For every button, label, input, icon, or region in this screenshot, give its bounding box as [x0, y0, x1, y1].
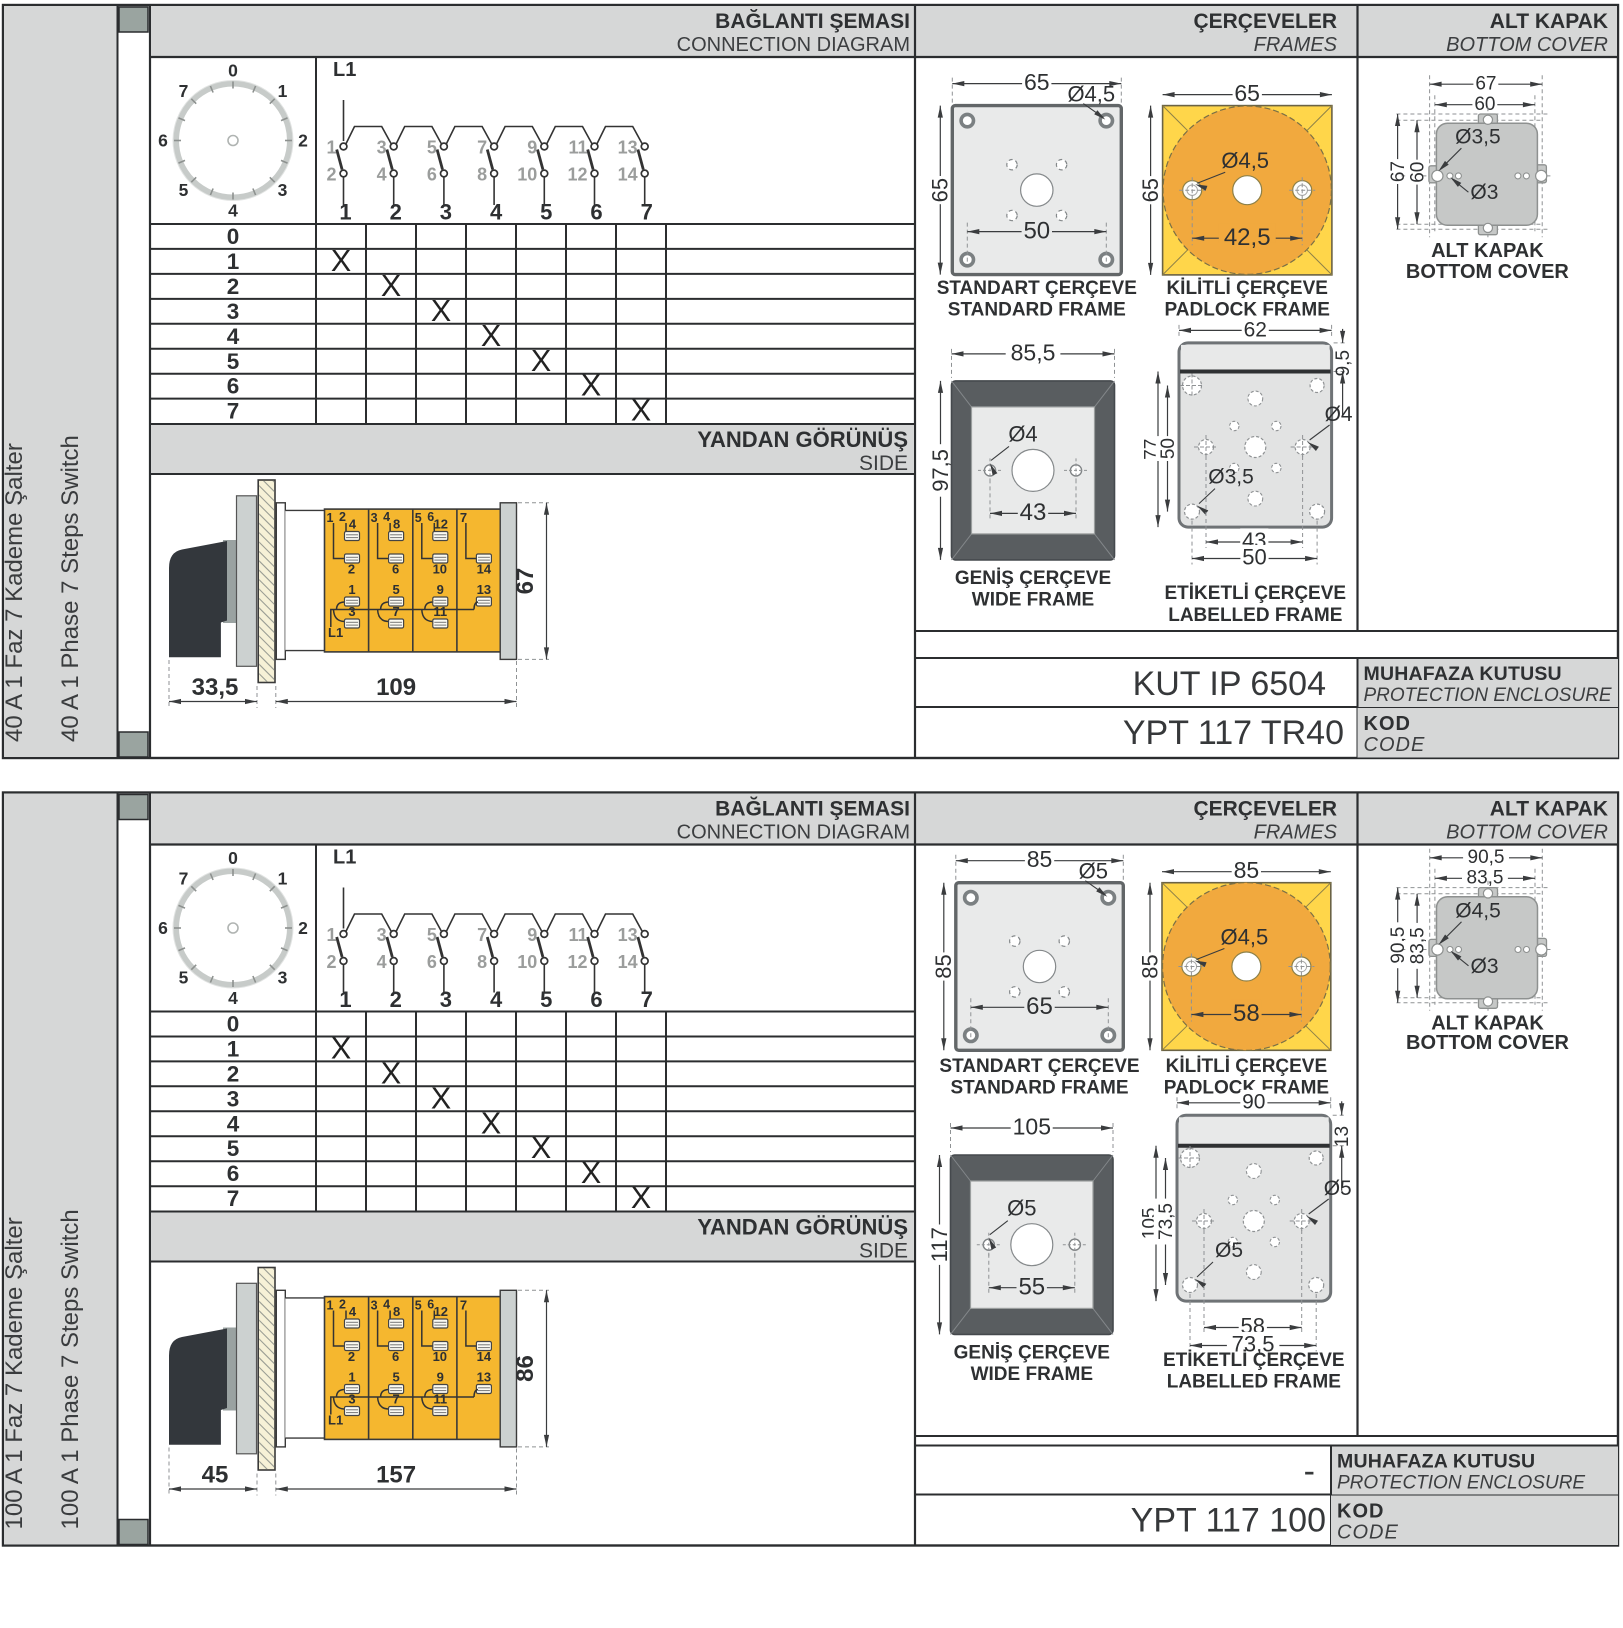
svg-text:13: 13: [618, 138, 638, 158]
svg-text:Ø4: Ø4: [1325, 403, 1353, 426]
svg-text:97,5: 97,5: [928, 449, 953, 492]
svg-text:0: 0: [228, 61, 238, 81]
svg-text:L1: L1: [328, 1413, 343, 1428]
svg-text:7: 7: [179, 81, 189, 101]
svg-text:6: 6: [158, 131, 168, 151]
svg-text:X: X: [531, 344, 551, 378]
svg-text:3: 3: [227, 1086, 240, 1111]
svg-text:1: 1: [326, 138, 336, 158]
svg-text:MUHAFAZA KUTUSU: MUHAFAZA KUTUSU: [1337, 1451, 1535, 1473]
svg-text:ÇERÇEVELER: ÇERÇEVELER: [1193, 10, 1337, 33]
svg-text:0: 0: [227, 1012, 240, 1037]
svg-text:STANDARD FRAME: STANDARD FRAME: [948, 300, 1126, 321]
svg-text:Ø3,5: Ø3,5: [1455, 126, 1501, 149]
svg-text:Ø5: Ø5: [1324, 1177, 1352, 1200]
svg-text:BOTTOM COVER: BOTTOM COVER: [1406, 1032, 1570, 1054]
svg-text:YANDAN GÖRÜNÜŞ: YANDAN GÖRÜNÜŞ: [697, 1215, 908, 1240]
svg-text:65: 65: [1026, 993, 1053, 1020]
svg-text:8: 8: [393, 517, 400, 532]
svg-text:9: 9: [437, 1370, 444, 1385]
svg-text:11: 11: [433, 604, 447, 619]
svg-text:Ø4,5: Ø4,5: [1455, 899, 1501, 922]
svg-text:7: 7: [392, 1392, 399, 1407]
svg-text:85: 85: [1234, 857, 1260, 883]
svg-text:Ø4,5: Ø4,5: [1221, 925, 1269, 950]
svg-text:7: 7: [227, 399, 240, 424]
svg-text:67: 67: [1475, 74, 1496, 95]
svg-text:X: X: [381, 269, 401, 303]
svg-text:4: 4: [490, 987, 503, 1012]
svg-text:58: 58: [1233, 1000, 1260, 1027]
svg-text:6: 6: [392, 562, 399, 577]
svg-text:13: 13: [618, 925, 638, 945]
svg-text:5: 5: [427, 925, 437, 945]
svg-text:1: 1: [348, 582, 355, 597]
svg-text:2: 2: [298, 131, 308, 151]
svg-text:85: 85: [931, 954, 956, 978]
svg-text:X: X: [481, 1106, 501, 1140]
svg-text:LABELLED FRAME: LABELLED FRAME: [1167, 1372, 1341, 1393]
svg-text:10: 10: [433, 562, 447, 577]
svg-text:13: 13: [477, 582, 491, 597]
svg-text:3: 3: [278, 180, 288, 200]
svg-text:GENİŞ ÇERÇEVE: GENİŞ ÇERÇEVE: [955, 568, 1111, 589]
svg-text:BOTTOM COVER: BOTTOM COVER: [1446, 34, 1608, 56]
svg-text:157: 157: [376, 1462, 416, 1489]
svg-text:WIDE FRAME: WIDE FRAME: [971, 1364, 1093, 1385]
svg-text:X: X: [481, 319, 501, 353]
svg-text:2: 2: [390, 987, 402, 1012]
svg-text:Ø5: Ø5: [1007, 1196, 1036, 1221]
svg-text:50: 50: [1158, 438, 1179, 459]
svg-text:3: 3: [348, 604, 355, 619]
svg-text:2: 2: [390, 200, 402, 225]
svg-text:55: 55: [1018, 1273, 1045, 1300]
svg-text:9: 9: [527, 925, 537, 945]
svg-text:90,5: 90,5: [1468, 847, 1505, 868]
svg-text:CONNECTION DIAGRAM: CONNECTION DIAGRAM: [677, 34, 910, 56]
svg-text:X: X: [581, 1156, 601, 1190]
svg-text:7: 7: [477, 925, 487, 945]
svg-text:65: 65: [1234, 80, 1260, 106]
svg-text:X: X: [431, 294, 451, 328]
svg-text:45: 45: [202, 1462, 229, 1489]
svg-text:PROTECTION ENCLOSURE: PROTECTION ENCLOSURE: [1337, 1473, 1585, 1494]
svg-text:6: 6: [158, 918, 168, 938]
svg-text:65: 65: [928, 178, 953, 202]
svg-text:3: 3: [377, 925, 387, 945]
svg-text:5: 5: [540, 987, 552, 1012]
svg-text:4: 4: [228, 988, 238, 1008]
svg-text:4: 4: [383, 1298, 390, 1312]
svg-text:40 A 1 Phase 7 Steps Switch: 40 A 1 Phase 7 Steps Switch: [57, 435, 84, 742]
svg-text:6: 6: [590, 200, 602, 225]
svg-text:3: 3: [227, 299, 240, 324]
svg-text:85: 85: [1027, 846, 1053, 872]
svg-text:ALT KAPAK: ALT KAPAK: [1490, 798, 1608, 821]
svg-text:Ø4: Ø4: [1008, 421, 1037, 446]
svg-text:7: 7: [392, 604, 399, 619]
svg-text:5: 5: [227, 1136, 240, 1161]
svg-text:5: 5: [540, 200, 552, 225]
svg-text:BAĞLANTI ŞEMASI: BAĞLANTI ŞEMASI: [715, 9, 910, 33]
svg-text:85: 85: [1137, 954, 1162, 978]
svg-text:11: 11: [568, 925, 587, 945]
svg-text:2: 2: [339, 510, 346, 524]
svg-text:Ø3: Ø3: [1470, 955, 1498, 978]
svg-text:60: 60: [1407, 162, 1428, 183]
svg-text:X: X: [631, 394, 651, 428]
svg-text:ETİKETLİ ÇERÇEVE: ETİKETLİ ÇERÇEVE: [1163, 1350, 1345, 1371]
svg-text:BOTTOM COVER: BOTTOM COVER: [1406, 261, 1570, 283]
svg-text:6: 6: [392, 1349, 399, 1364]
svg-text:L1: L1: [333, 847, 356, 869]
svg-text:90: 90: [1242, 1091, 1265, 1114]
svg-text:4: 4: [349, 1304, 357, 1319]
svg-text:2: 2: [227, 1061, 240, 1086]
svg-text:7: 7: [641, 987, 653, 1012]
svg-text:Ø3,5: Ø3,5: [1208, 466, 1254, 489]
svg-text:83,5: 83,5: [1467, 868, 1504, 889]
svg-text:Ø5: Ø5: [1079, 859, 1108, 884]
svg-text:6: 6: [227, 1161, 240, 1186]
svg-text:1: 1: [348, 1370, 355, 1385]
svg-text:33,5: 33,5: [192, 674, 239, 701]
svg-text:ÇERÇEVELER: ÇERÇEVELER: [1193, 798, 1337, 821]
svg-text:-: -: [1304, 1453, 1315, 1491]
svg-text:X: X: [331, 244, 351, 278]
svg-text:2: 2: [298, 918, 308, 938]
svg-text:9: 9: [527, 138, 537, 158]
svg-text:5: 5: [392, 1370, 399, 1385]
svg-text:62: 62: [1244, 318, 1267, 341]
svg-text:ETİKETLİ ÇERÇEVE: ETİKETLİ ÇERÇEVE: [1165, 583, 1347, 604]
svg-text:50: 50: [1242, 545, 1266, 570]
svg-text:STANDARD FRAME: STANDARD FRAME: [950, 1078, 1128, 1099]
svg-text:6: 6: [590, 987, 602, 1012]
svg-text:YPT 117 TR40: YPT 117 TR40: [1123, 714, 1344, 752]
svg-text:12: 12: [434, 1304, 448, 1319]
svg-text:7: 7: [227, 1186, 240, 1211]
svg-text:7: 7: [460, 510, 467, 525]
svg-text:1: 1: [278, 869, 288, 889]
svg-text:1: 1: [339, 987, 351, 1012]
svg-text:8: 8: [477, 952, 487, 972]
svg-text:3: 3: [371, 511, 378, 525]
svg-text:2: 2: [326, 165, 336, 185]
svg-text:YANDAN GÖRÜNÜŞ: YANDAN GÖRÜNÜŞ: [697, 427, 908, 452]
svg-text:2: 2: [227, 274, 240, 299]
svg-text:BOTTOM COVER: BOTTOM COVER: [1446, 822, 1608, 844]
svg-text:8: 8: [393, 1304, 400, 1319]
svg-text:67: 67: [512, 568, 539, 595]
svg-text:100 A 1 Phase 7 Steps Switch: 100 A 1 Phase 7 Steps Switch: [57, 1209, 84, 1529]
svg-text:7: 7: [641, 200, 653, 225]
svg-text:5: 5: [179, 968, 189, 988]
svg-text:2: 2: [348, 562, 355, 577]
svg-text:3: 3: [377, 138, 387, 158]
svg-text:4: 4: [490, 200, 503, 225]
svg-text:1: 1: [227, 1037, 240, 1062]
svg-text:X: X: [581, 369, 601, 403]
svg-text:5: 5: [415, 1299, 422, 1313]
svg-text:109: 109: [376, 674, 416, 701]
svg-text:1: 1: [278, 81, 288, 101]
svg-text:3: 3: [371, 1299, 378, 1313]
svg-text:12: 12: [567, 165, 587, 185]
svg-text:60: 60: [1474, 94, 1495, 115]
svg-text:CONNECTION DIAGRAM: CONNECTION DIAGRAM: [677, 822, 910, 844]
svg-text:GENİŞ ÇERÇEVE: GENİŞ ÇERÇEVE: [954, 1343, 1110, 1364]
svg-text:Ø3: Ø3: [1470, 181, 1498, 204]
svg-text:ALT KAPAK: ALT KAPAK: [1490, 10, 1608, 33]
svg-text:14: 14: [477, 562, 492, 577]
svg-text:CODE: CODE: [1337, 1522, 1399, 1544]
svg-text:KİLİTLİ ÇERÇEVE: KİLİTLİ ÇERÇEVE: [1166, 1056, 1328, 1077]
svg-text:6: 6: [427, 165, 437, 185]
svg-text:4: 4: [228, 201, 238, 221]
svg-text:KİLİTLİ ÇERÇEVE: KİLİTLİ ÇERÇEVE: [1166, 278, 1328, 299]
svg-text:KOD: KOD: [1364, 713, 1411, 735]
svg-text:9,5: 9,5: [1333, 350, 1354, 376]
svg-text:8: 8: [477, 165, 487, 185]
svg-text:43: 43: [1020, 499, 1047, 526]
svg-text:Ø4,5: Ø4,5: [1067, 82, 1115, 107]
svg-text:9: 9: [437, 582, 444, 597]
svg-text:2: 2: [326, 952, 336, 972]
svg-text:3: 3: [440, 987, 452, 1012]
svg-text:11: 11: [568, 138, 587, 158]
svg-text:KUT IP 6504: KUT IP 6504: [1133, 665, 1326, 703]
svg-text:14: 14: [618, 952, 638, 972]
svg-text:X: X: [431, 1081, 451, 1115]
svg-text:12: 12: [567, 952, 587, 972]
svg-text:KOD: KOD: [1337, 1501, 1384, 1523]
svg-text:14: 14: [618, 165, 638, 185]
svg-text:FRAMES: FRAMES: [1254, 822, 1338, 844]
svg-text:4: 4: [377, 165, 387, 185]
svg-text:L1: L1: [328, 625, 343, 640]
svg-text:1: 1: [227, 249, 240, 274]
svg-text:65: 65: [1024, 69, 1050, 95]
svg-text:CODE: CODE: [1364, 734, 1426, 756]
svg-text:4: 4: [227, 1111, 240, 1136]
svg-text:12: 12: [434, 517, 448, 532]
svg-text:X: X: [531, 1131, 551, 1165]
svg-text:5: 5: [415, 511, 422, 525]
svg-text:5: 5: [179, 180, 189, 200]
svg-text:Ø5: Ø5: [1215, 1239, 1243, 1262]
svg-text:13: 13: [1332, 1126, 1353, 1147]
svg-text:LABELLED FRAME: LABELLED FRAME: [1168, 605, 1342, 626]
svg-text:2: 2: [339, 1298, 346, 1312]
svg-text:0: 0: [228, 848, 238, 868]
svg-text:X: X: [381, 1056, 401, 1090]
svg-text:40 A 1 Faz 7 Kademe Şalter: 40 A 1 Faz 7 Kademe Şalter: [1, 443, 28, 742]
svg-text:YPT 117 100: YPT 117 100: [1131, 1502, 1326, 1540]
svg-text:5: 5: [227, 349, 240, 374]
svg-text:10: 10: [517, 165, 537, 185]
svg-text:MUHAFAZA KUTUSU: MUHAFAZA KUTUSU: [1364, 663, 1562, 685]
svg-text:100 A 1 Faz 7 Kademe Şalter: 100 A 1 Faz 7 Kademe Şalter: [1, 1217, 28, 1529]
svg-text:3: 3: [278, 968, 288, 988]
svg-text:PROTECTION ENCLOSURE: PROTECTION ENCLOSURE: [1364, 685, 1612, 706]
svg-text:STANDART ÇERÇEVE: STANDART ÇERÇEVE: [937, 278, 1137, 299]
svg-text:STANDART ÇERÇEVE: STANDART ÇERÇEVE: [939, 1056, 1139, 1077]
svg-text:2: 2: [348, 1349, 355, 1364]
svg-text:WIDE FRAME: WIDE FRAME: [972, 590, 1094, 611]
svg-text:X: X: [631, 1181, 651, 1215]
svg-text:73,5: 73,5: [1156, 1203, 1177, 1240]
svg-text:6: 6: [227, 374, 240, 399]
svg-text:3: 3: [348, 1392, 355, 1407]
svg-text:ALT KAPAK: ALT KAPAK: [1431, 240, 1544, 262]
svg-text:5: 5: [427, 138, 437, 158]
svg-text:0: 0: [227, 224, 240, 249]
svg-text:83,5: 83,5: [1407, 927, 1428, 964]
svg-text:1: 1: [339, 200, 351, 225]
svg-text:1: 1: [326, 925, 336, 945]
svg-text:14: 14: [477, 1349, 492, 1364]
svg-text:105: 105: [1013, 1113, 1051, 1139]
svg-text:Ø4,5: Ø4,5: [1221, 148, 1269, 173]
svg-text:1: 1: [327, 1299, 334, 1313]
svg-text:11: 11: [433, 1392, 447, 1407]
svg-text:FRAMES: FRAMES: [1254, 34, 1338, 56]
svg-text:4: 4: [227, 324, 240, 349]
svg-text:7: 7: [179, 869, 189, 889]
svg-text:BAĞLANTI ŞEMASI: BAĞLANTI ŞEMASI: [715, 797, 910, 821]
svg-text:5: 5: [392, 582, 399, 597]
svg-text:117: 117: [927, 1227, 952, 1262]
svg-text:4: 4: [383, 510, 390, 524]
svg-text:1: 1: [327, 511, 334, 525]
svg-text:L1: L1: [333, 59, 356, 81]
svg-text:4: 4: [349, 517, 357, 532]
svg-text:3: 3: [440, 200, 452, 225]
svg-text:13: 13: [477, 1370, 491, 1385]
svg-text:50: 50: [1023, 217, 1050, 244]
svg-text:7: 7: [460, 1298, 467, 1313]
svg-text:4: 4: [377, 952, 387, 972]
svg-text:10: 10: [433, 1349, 447, 1364]
svg-text:6: 6: [427, 952, 437, 972]
svg-text:10: 10: [517, 952, 537, 972]
svg-text:65: 65: [1138, 178, 1163, 202]
svg-text:86: 86: [512, 1355, 539, 1382]
svg-text:85,5: 85,5: [1011, 339, 1056, 365]
svg-text:42,5: 42,5: [1224, 224, 1271, 251]
svg-text:7: 7: [477, 138, 487, 158]
svg-text:SIDE: SIDE: [859, 452, 908, 475]
svg-text:X: X: [331, 1032, 351, 1066]
svg-text:SIDE: SIDE: [859, 1240, 908, 1263]
